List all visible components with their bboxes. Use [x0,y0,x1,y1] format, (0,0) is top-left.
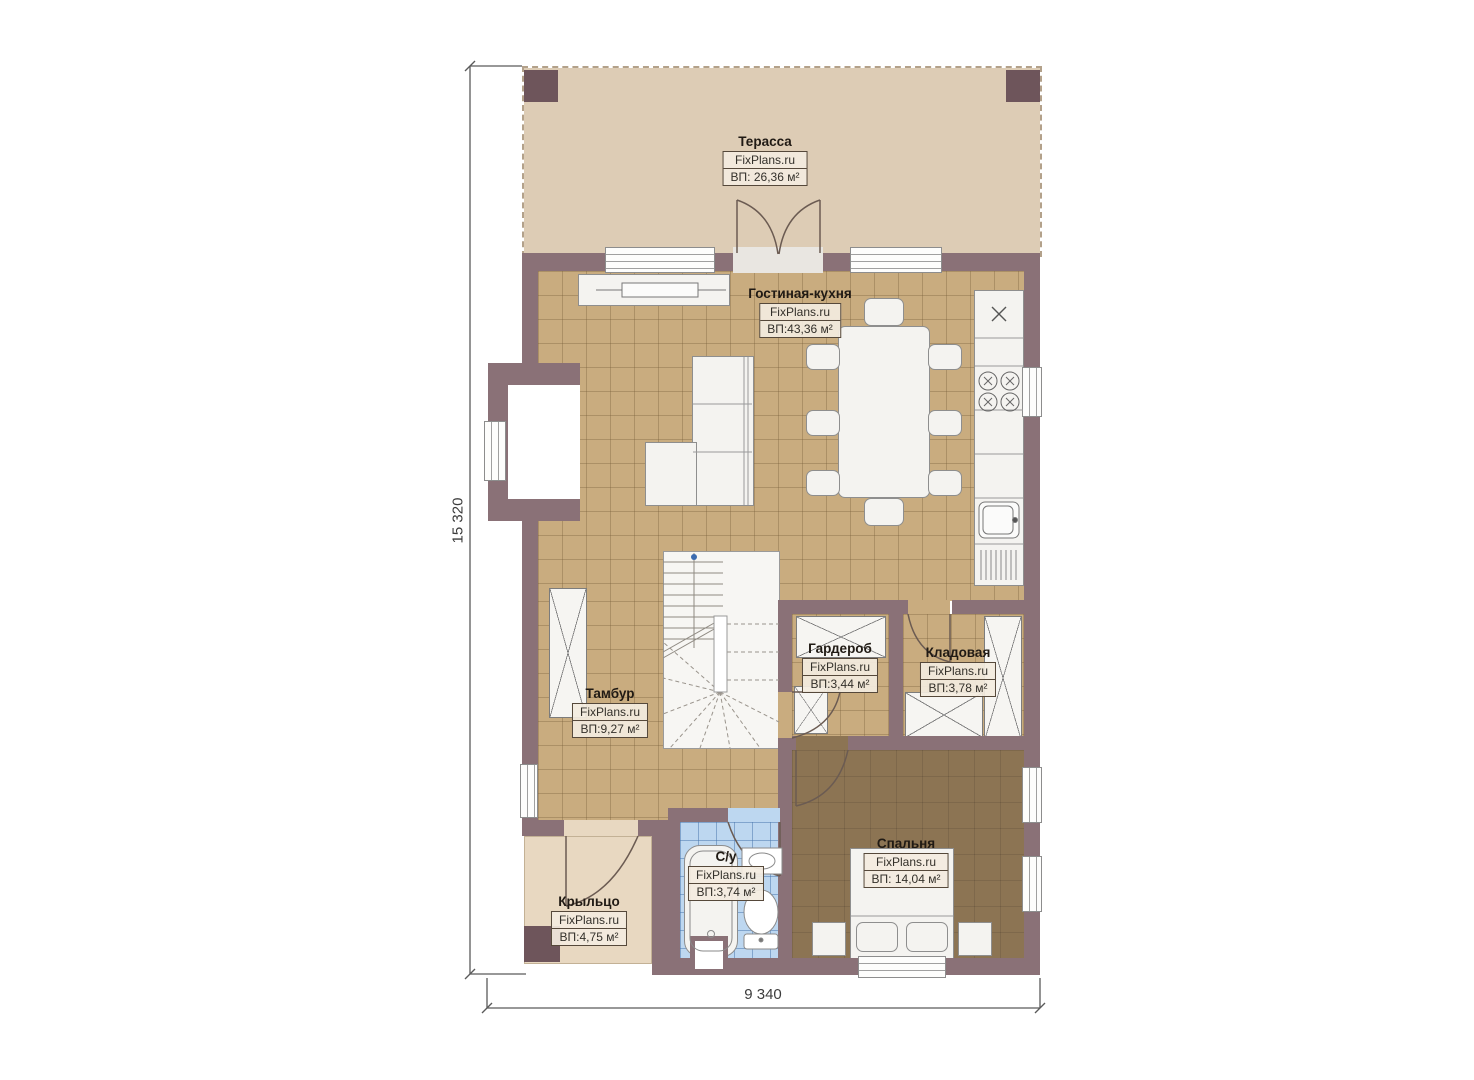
window [520,764,538,818]
storage-shelf-bottom [905,692,983,738]
bedroom-window [1022,767,1042,823]
room-area: ВП:3,78 м² [921,679,995,696]
chair [928,344,962,370]
watermark: FixPlans.ru [689,867,763,883]
vent-shaft [690,936,728,974]
room-name: Спальня [864,836,949,851]
room-name: Гостиная-кухня [748,286,851,301]
room-area: ВП:3,44 м² [803,675,877,692]
kitchen-window [1022,367,1042,417]
door-opening-storage [908,600,950,614]
chair [806,470,840,496]
room-label-porch: Крыльцо FixPlans.ru ВП:4,75 м² [551,894,627,946]
door-opening-bathroom [728,808,780,822]
room-area: ВП: 26,36 м² [724,168,807,185]
room-area: ВП: 14,04 м² [865,870,948,887]
room-info-box: FixPlans.ru ВП:4,75 м² [551,911,627,946]
room-area: ВП:9,27 м² [573,720,647,737]
room-info-box: FixPlans.ru ВП: 26,36 м² [723,151,808,186]
bedroom-window [1022,856,1042,912]
room-area: ВП:3,74 м² [689,883,763,900]
room-info-box: FixPlans.ru ВП:43,36 м² [759,303,841,338]
watermark: FixPlans.ru [573,704,647,720]
wall-wardrobe-storage [889,614,903,750]
terrace-door-opening [733,247,823,273]
watermark: FixPlans.ru [724,152,807,168]
staircase [663,551,780,749]
floor-plan-page: { "plan": { "type": "floor-plan", "floor… [0,0,1474,1080]
watermark: FixPlans.ru [803,659,877,675]
wall-bedroom-left [778,750,792,958]
room-info-box: FixPlans.ru ВП:3,74 м² [688,866,764,901]
kitchen-counter [974,290,1024,586]
room-label-storage: Кладовая FixPlans.ru ВП:3,78 м² [920,645,996,697]
pillow [906,922,948,952]
room-label-bathroom: С/у FixPlans.ru ВП:3,74 м² [688,849,764,901]
tv-cabinet [578,274,730,306]
chair [806,344,840,370]
nightstand [812,922,846,956]
room-name: Тамбур [572,686,648,701]
watermark: FixPlans.ru [921,663,995,679]
chair [864,498,904,526]
room-area: ВП:4,75 м² [552,928,626,945]
pillow [856,922,898,952]
wall-interior-h1 [778,600,908,614]
sofa-chaise [645,442,697,506]
watermark: FixPlans.ru [760,304,840,320]
room-label-tambour: Тамбур FixPlans.ru ВП:9,27 м² [572,686,648,738]
terrace-post [1006,70,1040,102]
wall-left-upper [522,253,538,368]
room-label-bedroom: Спальня FixPlans.ru ВП: 14,04 м² [864,836,949,888]
room-info-box: FixPlans.ru ВП:3,78 м² [920,662,996,697]
watermark: FixPlans.ru [552,912,626,928]
room-label-terrace: Терасса FixPlans.ru ВП: 26,36 м² [723,134,808,186]
door-opening-wardrobe [778,692,792,738]
room-info-box: FixPlans.ru ВП:9,27 м² [572,703,648,738]
sofa [692,356,754,506]
bay-window [484,421,506,481]
window [605,247,715,273]
dimension-label-horizontal: 9 340 [723,986,803,1003]
wall-porch-bath [652,820,680,975]
dining-table [838,326,930,498]
room-name: Гардероб [802,641,878,656]
door-opening-porch [564,820,638,836]
wall-interior-h1b [952,600,1024,614]
nightstand [958,922,992,956]
bedroom-window-bottom [858,956,946,978]
room-name: Крыльцо [551,894,627,909]
room-info-box: FixPlans.ru ВП: 14,04 м² [864,853,949,888]
room-name: Терасса [723,134,808,149]
wardrobe-closet-left [794,686,828,734]
chair [928,470,962,496]
window [850,247,942,273]
chair [864,298,904,326]
room-name: Кладовая [920,645,996,660]
chair [928,410,962,436]
room-label-wardrobe: Гардероб FixPlans.ru ВП:3,44 м² [802,641,878,693]
chair [806,410,840,436]
room-name: С/у [688,849,764,864]
room-area: ВП:43,36 м² [760,320,840,337]
watermark: FixPlans.ru [865,854,948,870]
bay-interior [508,385,580,499]
room-info-box: FixPlans.ru ВП:3,44 м² [802,658,878,693]
terrace-post [524,70,558,102]
room-label-living-kitchen: Гостиная-кухня FixPlans.ru ВП:43,36 м² [748,286,851,338]
dimension-label-vertical: 15 320 [450,481,467,561]
door-opening-bedroom [796,736,848,750]
